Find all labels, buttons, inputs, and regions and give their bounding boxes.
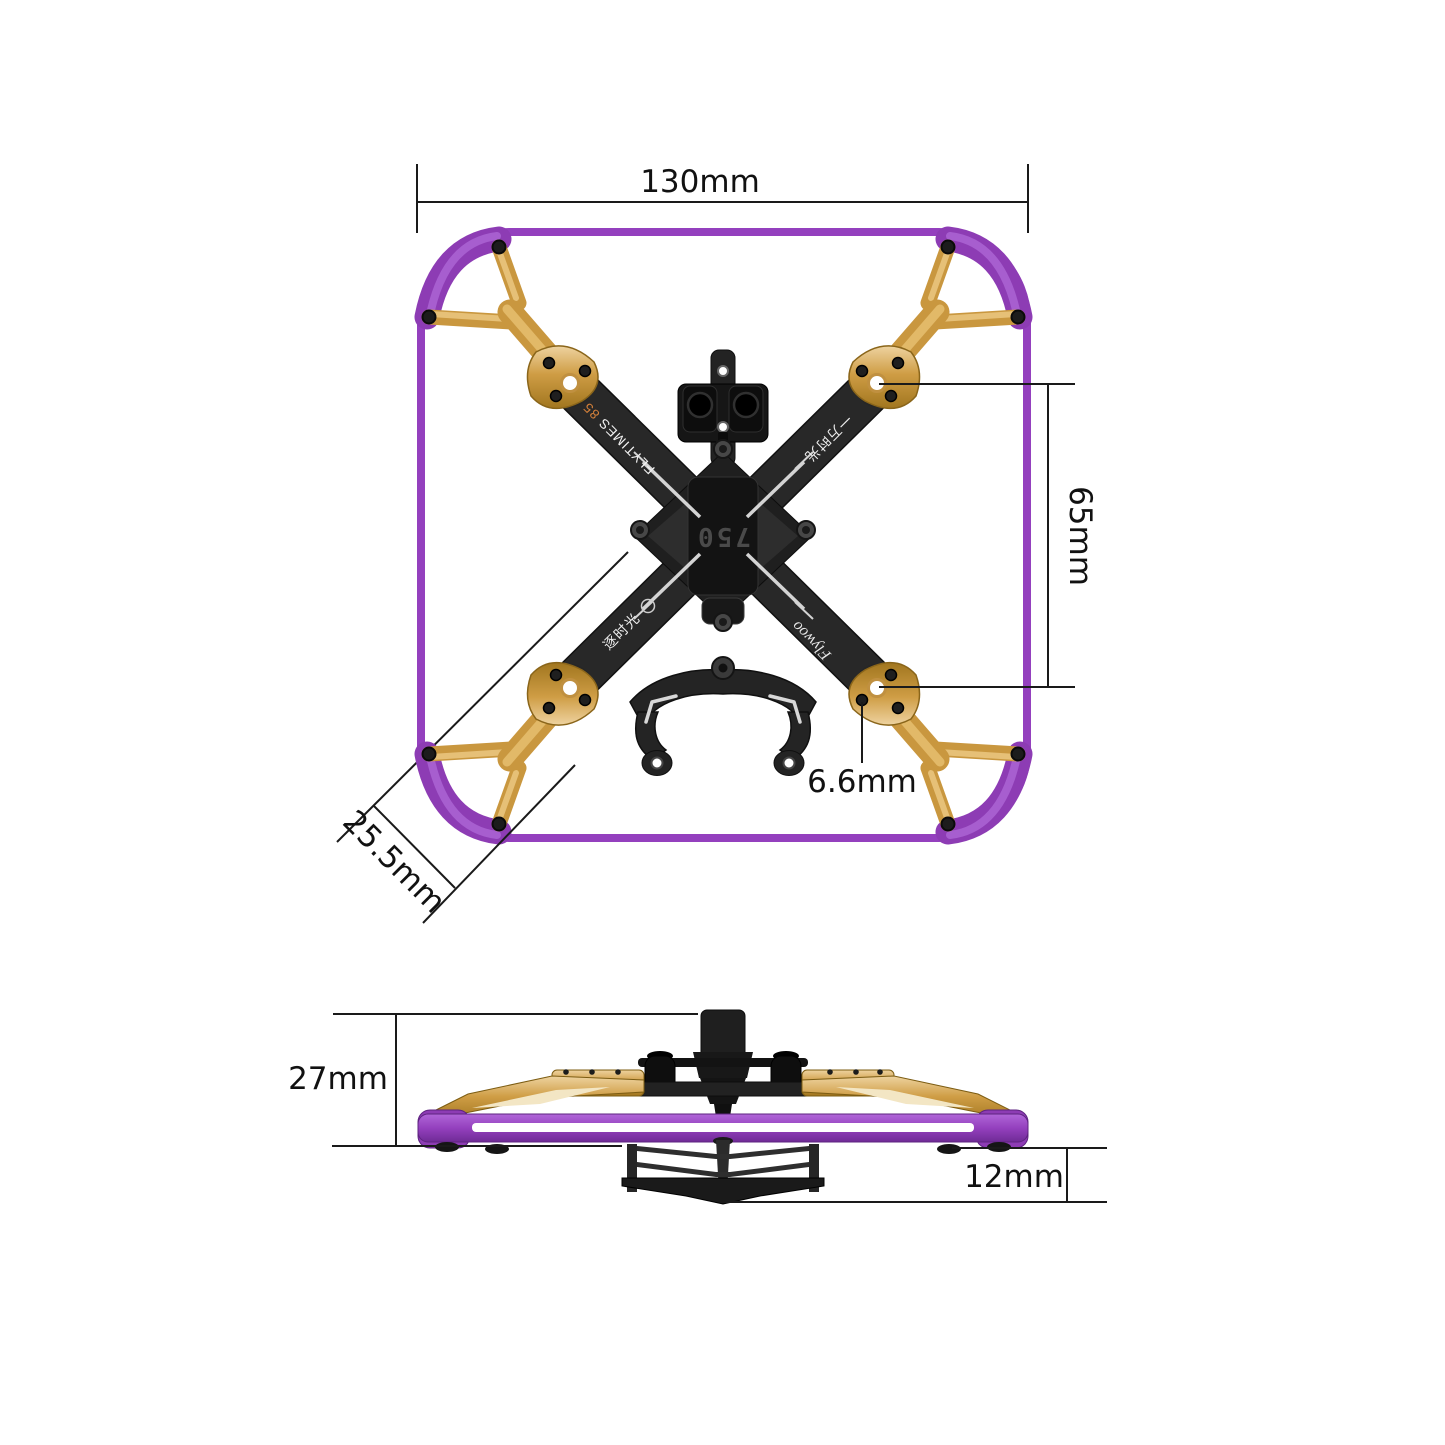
corner-assembly-bottom-right bbox=[849, 663, 1025, 835]
dim-lower-height: 12mm bbox=[964, 1159, 1064, 1195]
antenna-bracket bbox=[630, 657, 816, 776]
diagram-canvas: 750 bbox=[0, 0, 1445, 1445]
corner-assembly-top-left bbox=[423, 236, 599, 408]
dim-mount-span: 65mm bbox=[1062, 486, 1098, 586]
camera-lens-icon bbox=[734, 393, 758, 417]
camera-lens-icon bbox=[688, 393, 712, 417]
corner-assembly-top-right bbox=[849, 236, 1025, 408]
corner-assembly-bottom-left bbox=[423, 663, 599, 835]
top-view: 750 bbox=[337, 232, 1027, 842]
center-marking-750: 750 bbox=[695, 521, 751, 551]
dim-overall-width: 130mm bbox=[640, 164, 760, 200]
product-dimension-diagram: 750 bbox=[0, 0, 1445, 1445]
dim-overall-height: 27mm bbox=[288, 1061, 388, 1097]
dim-corner-width: 25.5mm bbox=[336, 804, 453, 921]
dim-mount-hole: 6.6mm bbox=[807, 764, 917, 800]
under-mount bbox=[622, 1137, 824, 1204]
side-view bbox=[418, 1010, 1028, 1204]
